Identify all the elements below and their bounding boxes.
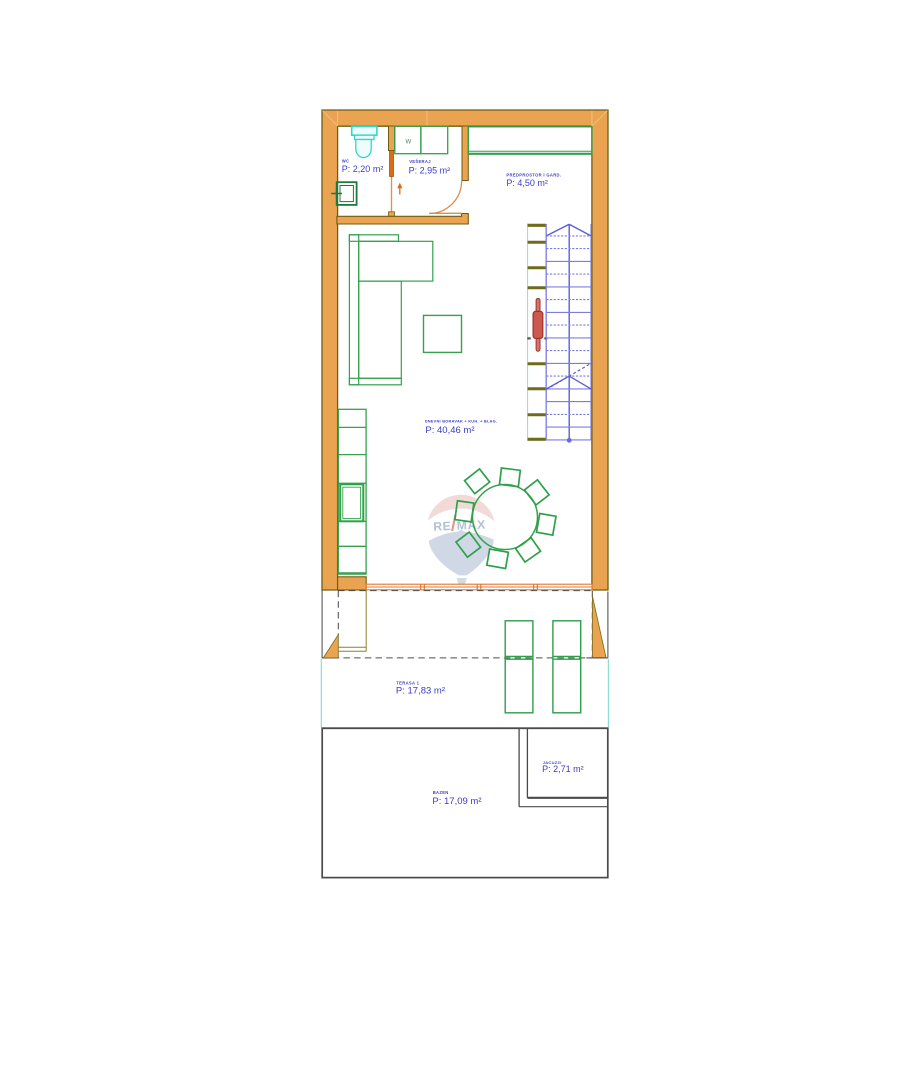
svg-text:P: 2,20 m²: P: 2,20 m² — [342, 164, 384, 174]
svg-text:P: 17,09 m²: P: 17,09 m² — [432, 796, 481, 807]
svg-text:P: 2,71 m²: P: 2,71 m² — [542, 764, 584, 774]
svg-text:P: 40,46 m²: P: 40,46 m² — [425, 425, 474, 436]
svg-text:TERASA 1: TERASA 1 — [396, 680, 419, 685]
svg-text:W: W — [406, 140, 412, 146]
svg-text:PREDPROSTOR I GARD.: PREDPROSTOR I GARD. — [506, 172, 561, 177]
svg-text:RE: RE — [433, 519, 451, 534]
svg-text:VEŠERAJ: VEŠERAJ — [409, 159, 431, 164]
svg-text:WC: WC — [342, 159, 350, 164]
svg-text:BAZEN: BAZEN — [433, 790, 449, 795]
svg-text:P: 17,83 m²: P: 17,83 m² — [396, 686, 445, 697]
svg-text:P: 4,50 m²: P: 4,50 m² — [506, 178, 548, 188]
svg-text:DNEVNI BORAVAK + KUH. + BLAG.: DNEVNI BORAVAK + KUH. + BLAG. — [425, 418, 498, 423]
svg-text:P: 2,95 m²: P: 2,95 m² — [409, 166, 451, 176]
